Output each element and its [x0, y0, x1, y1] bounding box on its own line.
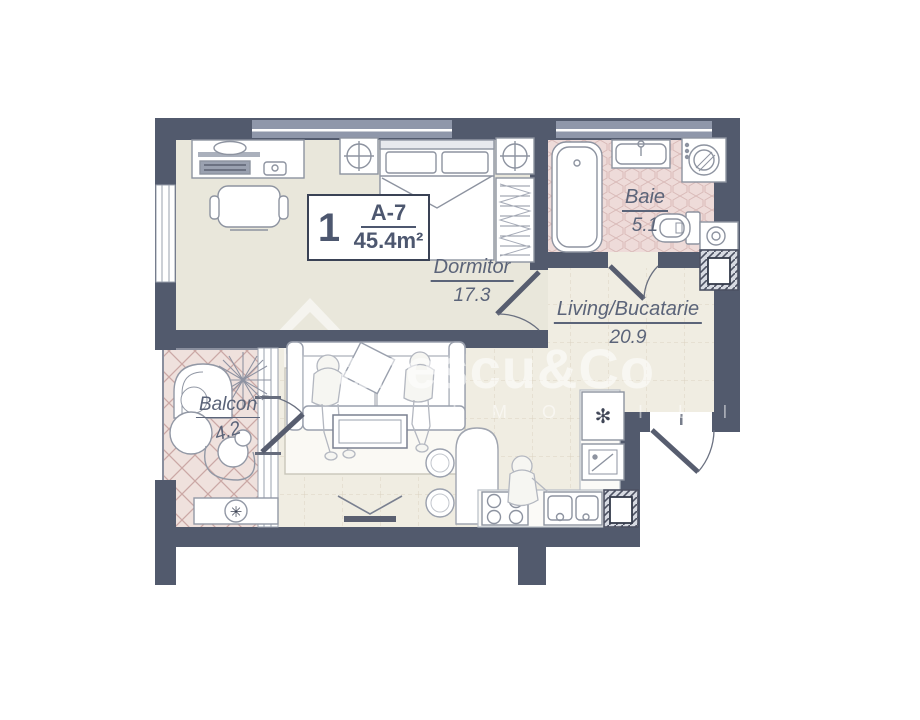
kitchen-sink [544, 492, 602, 525]
wall-bottom-pillar [518, 527, 546, 585]
pillow-left [386, 152, 436, 173]
snowflake-icon: ✻ [595, 406, 612, 428]
floor-plan: ✻ [0, 0, 920, 720]
armchair [174, 364, 232, 418]
unit-number: 1 [309, 208, 349, 248]
bar-chair-2 [426, 489, 454, 517]
nightstand-lamp-left [340, 138, 378, 174]
bath-door-opening [608, 252, 658, 268]
ac-unit: ✳ [194, 498, 278, 524]
washing-machine [682, 138, 726, 182]
bar-chair-1 [426, 449, 454, 477]
desk [192, 140, 304, 178]
wardrobe [496, 178, 534, 262]
unit-badge: 1 A-7 45.4m² [307, 194, 430, 261]
fan-icon: ✳ [230, 504, 243, 521]
unit-code: A-7 [361, 201, 416, 228]
unit-total-area: 45.4m² [354, 228, 424, 254]
window-bedroom-left [156, 185, 175, 282]
coffee-table [333, 415, 407, 448]
office-chair [210, 186, 288, 230]
kitchen-cabinet [582, 444, 624, 480]
toilet [652, 212, 700, 244]
ventilation-shaft [700, 250, 738, 290]
bath-sink [612, 140, 670, 168]
wall-bottom [155, 527, 640, 547]
bath-vanity [700, 222, 738, 250]
kitchen-shaft [604, 490, 638, 527]
floor-plan-canvas: ✻ [0, 0, 920, 720]
pillow-right [442, 152, 488, 173]
nightstand-lamp-right [496, 138, 534, 174]
bathtub [552, 142, 602, 252]
